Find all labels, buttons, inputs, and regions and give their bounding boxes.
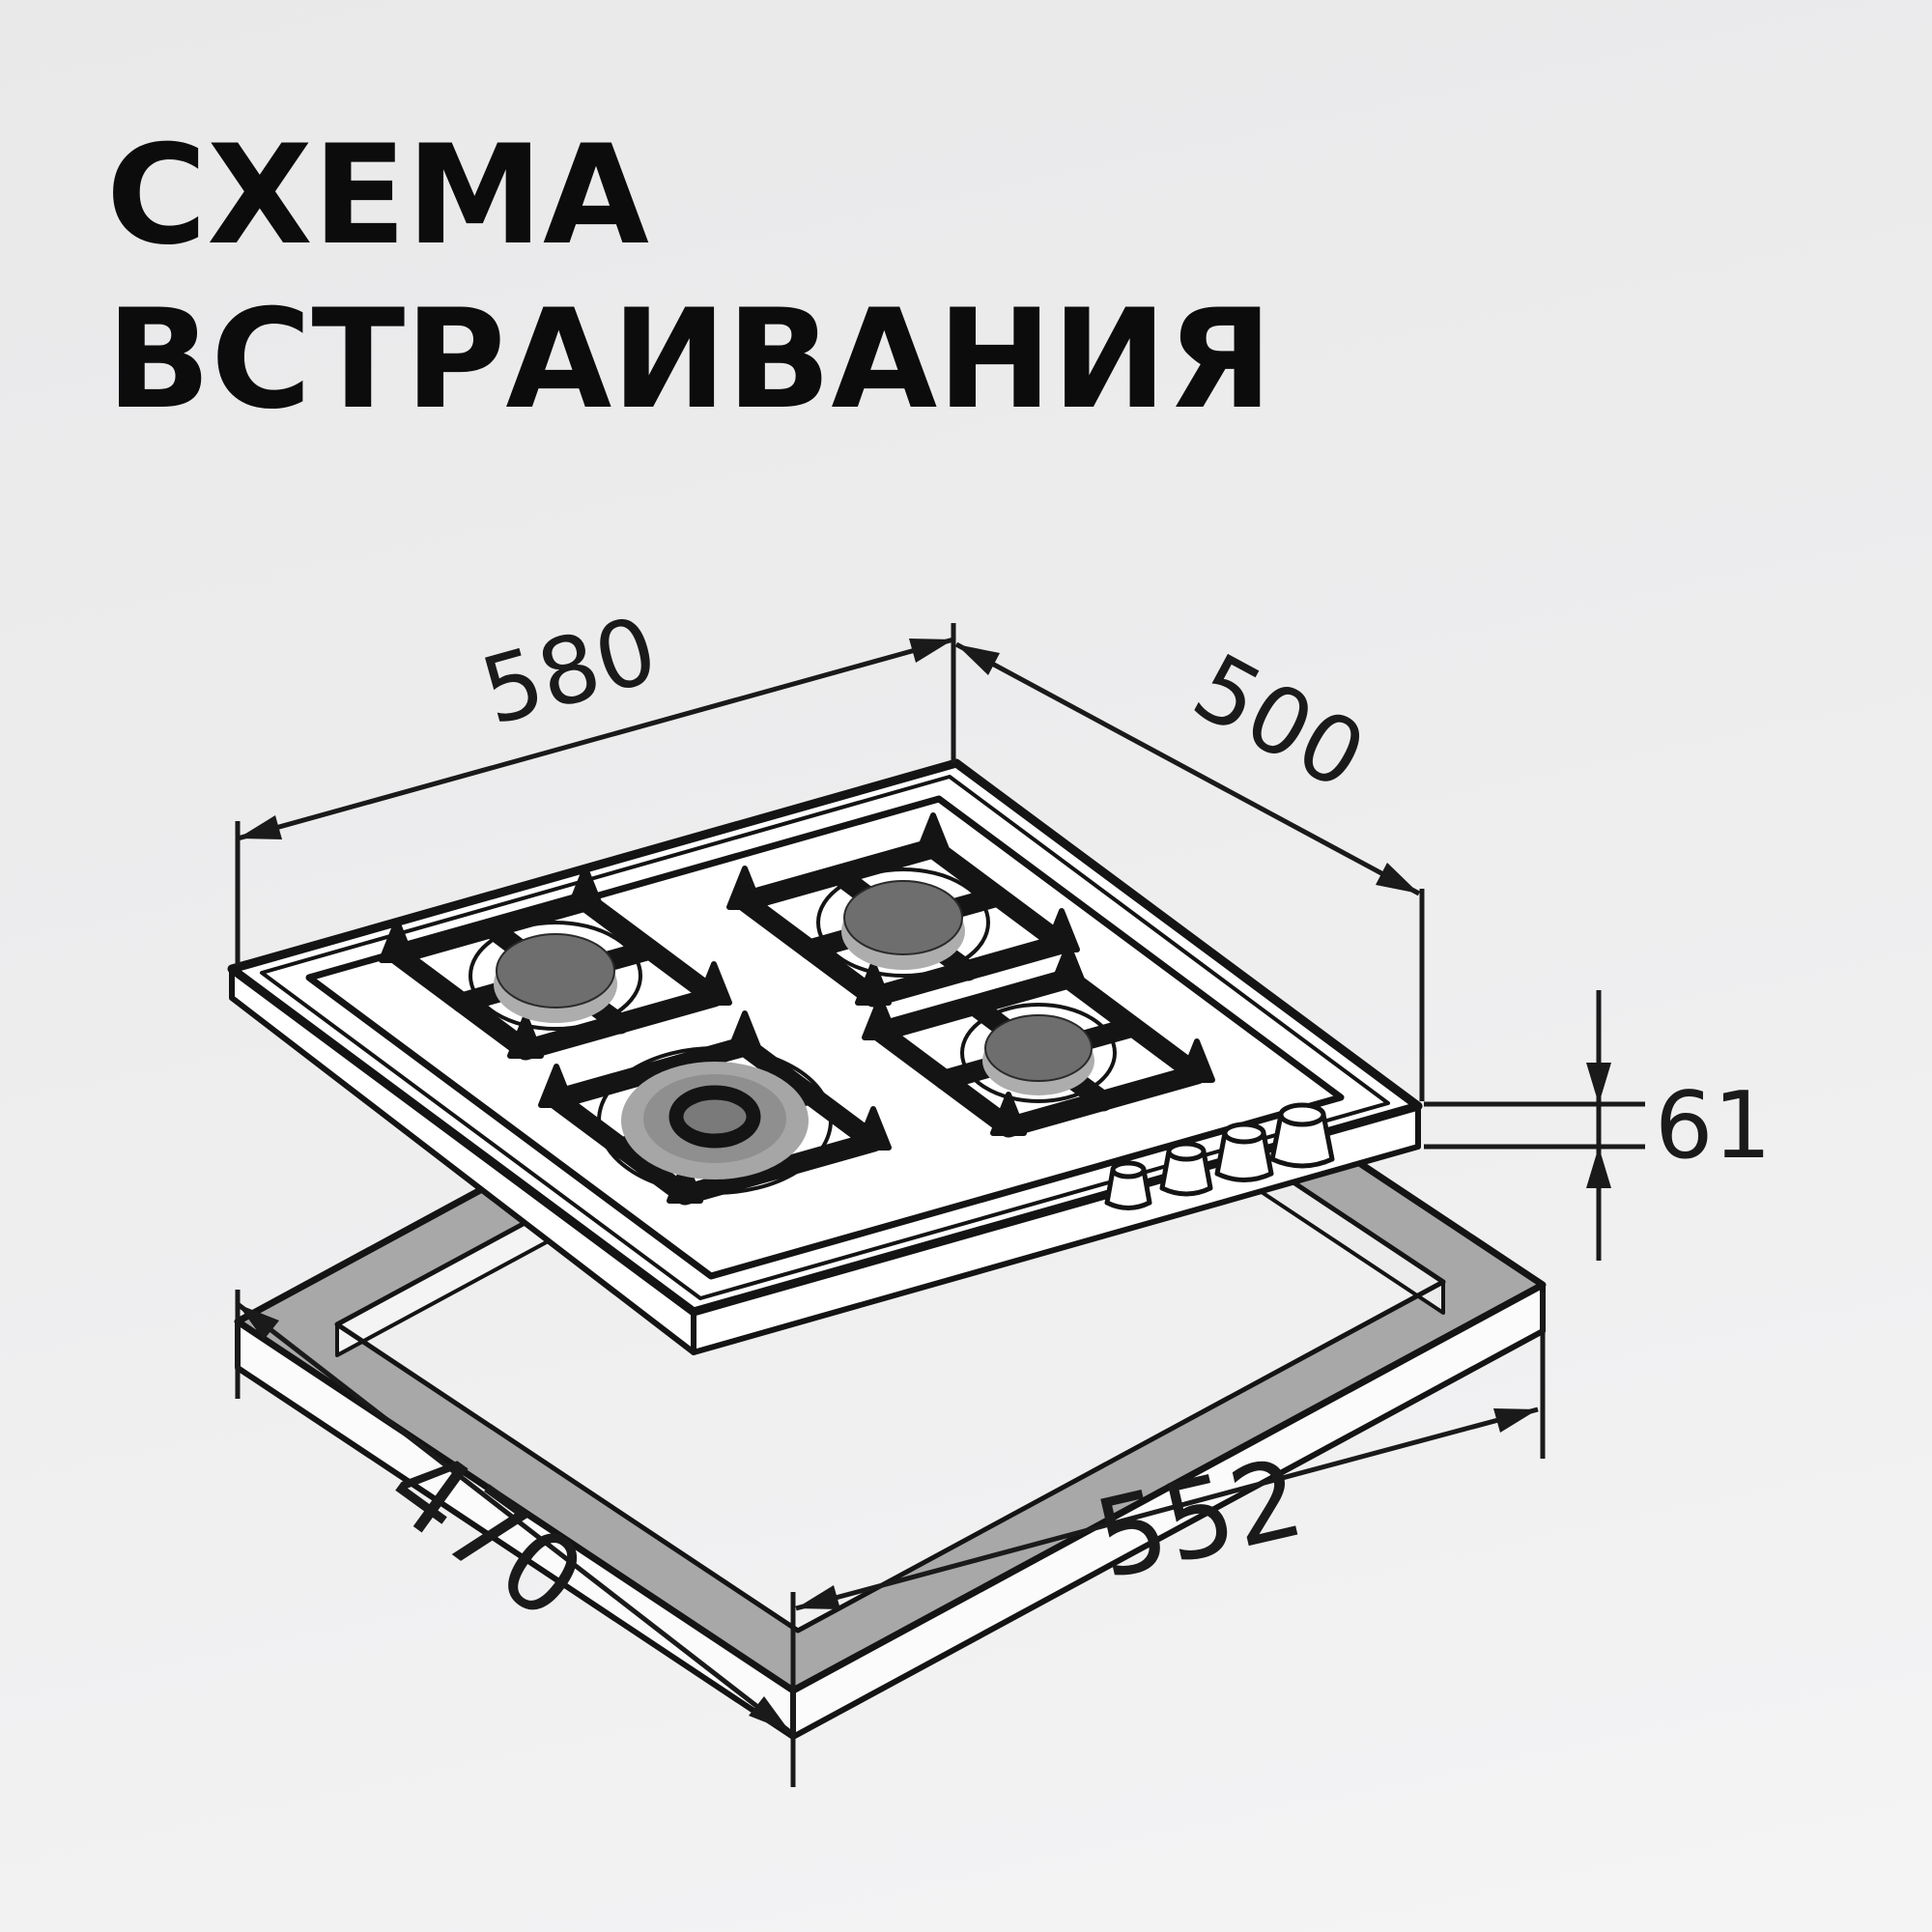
burner-left: [494, 934, 617, 1023]
burner-big: [621, 1062, 809, 1179]
knob-3: [1217, 1124, 1271, 1180]
arrow-552-left: [796, 1585, 840, 1609]
label-hob-width: 580: [470, 597, 668, 746]
label-hob-depth: 500: [1177, 634, 1381, 810]
knob-4: [1272, 1105, 1332, 1166]
arrow-552-right: [1493, 1408, 1538, 1433]
arrow-61-down: [1586, 1063, 1611, 1104]
arrow-500-left: [956, 644, 1000, 675]
dim-ticks-61: [1424, 1104, 1645, 1147]
installation-scheme-figure: 580 500 61 470 552: [0, 0, 1932, 1932]
arrow-61-up: [1586, 1147, 1611, 1188]
label-hob-height: 61: [1655, 1073, 1772, 1179]
arrow-500-right: [1376, 863, 1419, 894]
burner-back: [841, 881, 965, 970]
burner-right: [982, 1015, 1094, 1095]
arrow-580-right: [909, 639, 953, 663]
knob-2: [1162, 1144, 1210, 1194]
knob-1: [1107, 1163, 1150, 1208]
arrow-580-left: [238, 815, 282, 839]
